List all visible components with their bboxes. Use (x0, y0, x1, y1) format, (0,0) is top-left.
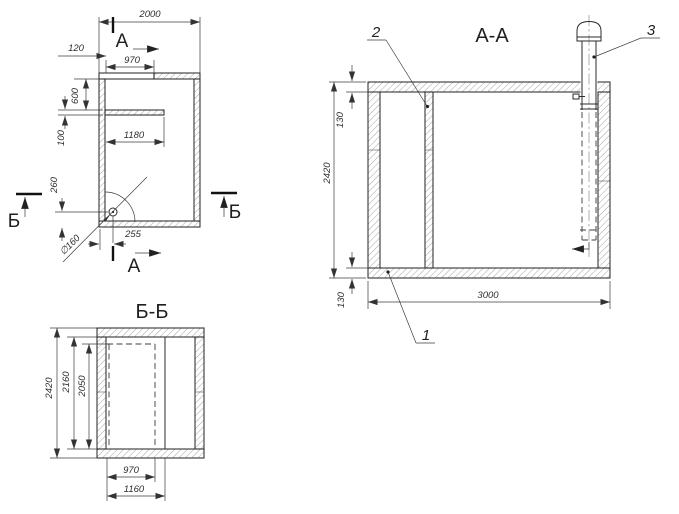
callout-2-leader (386, 40, 427, 106)
dim-600: 600 (70, 87, 81, 104)
dim-130-bottom: 130 (336, 291, 347, 308)
plan-left-wall (99, 79, 105, 221)
drawing-canvas: ∅160 2000 120 970 600 100 1180 260 (0, 0, 679, 514)
callout-1-leader (388, 272, 416, 343)
section-letter-b-left: Б (8, 211, 20, 232)
aa-partition-wall (425, 92, 433, 268)
section-letter-b-right: Б (229, 202, 241, 223)
callout-2: 2 (371, 24, 381, 41)
bb-left-wall (97, 337, 106, 449)
dim-255: 255 (124, 229, 142, 240)
bb-right-wall (195, 337, 204, 449)
dim-100: 100 (56, 129, 67, 146)
section-bb-title: Б-Б (136, 301, 169, 323)
aa-bottom-slab (368, 268, 610, 278)
dim-970-bb: 970 (123, 465, 140, 476)
plan-bottom-wall (99, 221, 200, 227)
dim-1160: 1160 (124, 484, 145, 495)
dim-2160: 2160 (61, 371, 72, 394)
plan-swing-arc (105, 192, 135, 222)
dim-130-top: 130 (335, 111, 346, 128)
dim-2050: 2050 (77, 375, 88, 398)
pipe-outlet-arrow (572, 242, 589, 249)
dim-2420-aa: 2420 (322, 162, 333, 185)
section-letter-a-top: А (116, 31, 129, 52)
plan-view: ∅160 2000 120 970 600 100 1180 260 (8, 9, 241, 277)
dim-260: 260 (49, 176, 60, 194)
dim-2420-bb: 2420 (44, 377, 55, 400)
plan-top-opening (99, 73, 154, 79)
callout-1: 1 (422, 327, 430, 344)
bb-bottom-slab (97, 449, 204, 458)
technical-drawing-sheet: ∅160 2000 120 970 600 100 1180 260 (0, 0, 679, 514)
aa-left-wall (368, 92, 380, 268)
section-aa-view: А-А 2 3 (322, 15, 660, 344)
aa-top-slab (368, 82, 610, 92)
aa-right-wall (598, 92, 610, 268)
section-letter-a-bottom: А (128, 256, 141, 277)
dim-970: 970 (124, 55, 141, 66)
section-bb-view: Б-Б 2420 2160 2050 970 (44, 301, 204, 501)
plan-partition-wall (105, 110, 164, 115)
pipe-clamp (573, 94, 579, 99)
dim-1180: 1180 (124, 130, 145, 141)
section-aa-title: А-А (475, 25, 509, 47)
dim-3000: 3000 (477, 290, 499, 301)
plan-right-wall (194, 79, 200, 221)
dim-120: 120 (68, 43, 85, 54)
callout-3: 3 (647, 22, 656, 39)
plan-top-wall (154, 73, 200, 79)
dim-2000: 2000 (138, 9, 161, 20)
bb-top-slab (97, 328, 204, 337)
